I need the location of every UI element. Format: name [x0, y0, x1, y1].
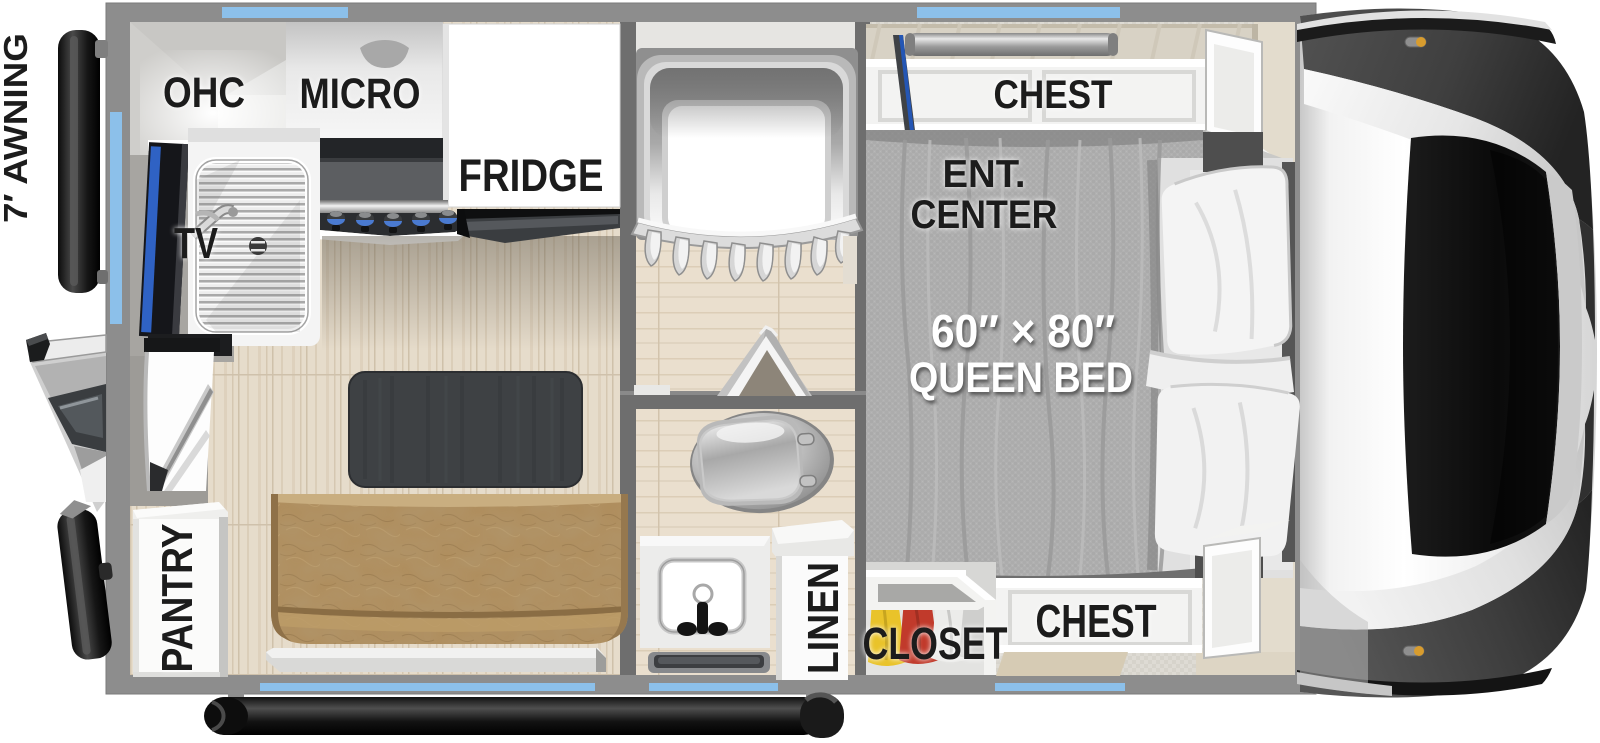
- svg-text:CLOSET: CLOSET: [863, 618, 1008, 669]
- svg-text:MICRO: MICRO: [300, 70, 421, 118]
- svg-text:OHC: OHC: [163, 69, 245, 117]
- svg-text:QUEEN BED: QUEEN BED: [909, 354, 1133, 402]
- svg-text:LINEN: LINEN: [799, 562, 848, 674]
- svg-text:TV: TV: [174, 219, 219, 268]
- svg-text:CHEST: CHEST: [994, 73, 1113, 117]
- svg-text:CHEST: CHEST: [1036, 595, 1157, 647]
- svg-text:60″ × 80″: 60″ × 80″: [931, 305, 1115, 357]
- svg-text:7′ AWNING: 7′ AWNING: [0, 33, 34, 223]
- svg-text:FRIDGE: FRIDGE: [459, 150, 604, 201]
- svg-text:ENT.: ENT.: [943, 153, 1026, 196]
- svg-text:CENTER: CENTER: [911, 193, 1058, 237]
- svg-text:PANTRY: PANTRY: [153, 524, 202, 673]
